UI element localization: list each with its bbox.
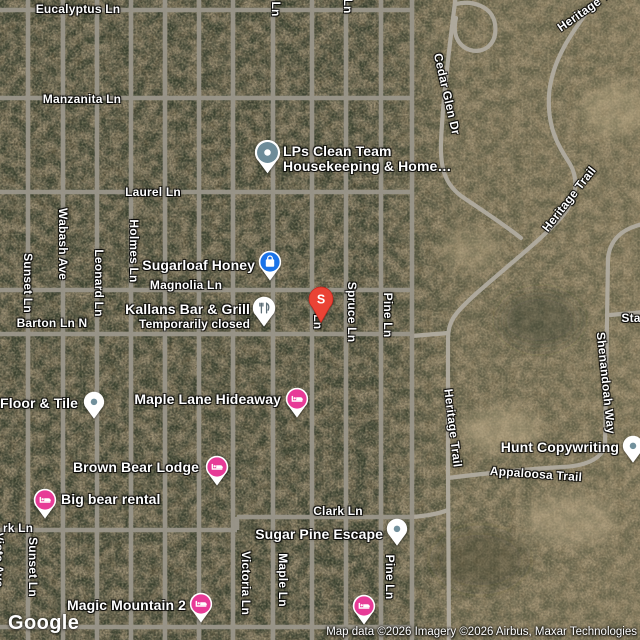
- poi-label-kallans-bar-grill[interactable]: Kallans Bar & Grill Temporarily closed: [125, 302, 250, 332]
- poi-label-brown-bear-lodge[interactable]: Brown Bear Lodge: [73, 460, 199, 475]
- street-label-barton-ln-n: Barton Ln N: [17, 316, 88, 330]
- poi-label-sugar-pine-escape[interactable]: Sugar Pine Escape: [255, 527, 383, 542]
- road-connector-barton: [412, 333, 448, 336]
- search-pin-letter: S: [317, 292, 325, 306]
- road-heritage-trail: [448, 0, 600, 640]
- poi-label-big-bear-rental[interactable]: Big bear rental: [61, 492, 161, 507]
- google-logo[interactable]: Google: [8, 612, 79, 635]
- street-label-victoria-ln: Victoria Ln: [239, 551, 253, 615]
- lps-clean-team-pin[interactable]: [254, 139, 281, 175]
- sugar-pine-escape-pin[interactable]: [386, 518, 408, 547]
- street-label-wabash-ave: Wabash Ave: [56, 208, 70, 280]
- street-label-maple-ln: Maple Ln: [276, 553, 290, 607]
- sugarloaf-honey-pin[interactable]: [258, 250, 282, 282]
- poi-label-floor-tile[interactable]: s Floor & Tile: [0, 396, 78, 411]
- big-bear-rental-pin[interactable]: [33, 488, 57, 520]
- road-culdesac-loop: [455, 3, 496, 51]
- kallans-bar-grill-pin[interactable]: [252, 296, 276, 328]
- street-label-sta-clipped: Sta: [621, 311, 640, 325]
- street-label-clark-ln: Clark Ln: [313, 504, 363, 518]
- floor-tile-pin[interactable]: [83, 391, 105, 420]
- street-label-top-clip-2: Ln: [341, 0, 355, 14]
- road-connector-clark: [412, 510, 448, 517]
- map-canvas[interactable]: Eucalyptus Ln Manzanita Ln Laurel Ln Mag…: [0, 0, 640, 640]
- generic-dot-icon: [91, 399, 98, 406]
- street-label-leonard-ln: Leonard Ln: [92, 249, 106, 316]
- generic-dot-icon: [394, 526, 401, 533]
- generic-dot-icon: [630, 443, 637, 450]
- poi-label-maple-lane-hideaway[interactable]: Maple Lane Hideaway: [134, 392, 281, 407]
- street-label-holmes-ln: Holmes Ln: [127, 219, 141, 282]
- street-label-spruce-ln: Spruce Ln: [345, 282, 359, 342]
- poi-label-sugarloaf-honey[interactable]: Sugarloaf Honey: [142, 258, 255, 273]
- street-label-rk-ln-clipped: rk Ln: [3, 521, 33, 535]
- magic-mountain-2-pin[interactable]: [189, 592, 213, 624]
- poi-label-magic-mountain-2[interactable]: Magic Mountain 2: [67, 598, 186, 613]
- street-label-pine-ln-lower: Pine Ln: [383, 555, 397, 600]
- maple-lane-hideaway-pin[interactable]: [285, 387, 309, 419]
- street-label-vista-ave-clipped: Vista Ave: [0, 533, 6, 588]
- generic-dot-icon: [264, 149, 271, 156]
- street-label-magnolia-ln: Magnolia Ln: [150, 278, 222, 292]
- street-label-eucalyptus-ln: Eucalyptus Ln: [36, 2, 121, 16]
- search-result-pin-s[interactable]: S: [308, 286, 334, 324]
- street-label-laurel-ln: Laurel Ln: [125, 185, 181, 199]
- street-label-sunset-ln-lower: Sunset Ln: [26, 537, 40, 597]
- street-label-top-clip-1: Ln: [269, 1, 283, 16]
- map-attribution: Map data ©2026 Imagery ©2026 Airbus, Max…: [326, 626, 637, 638]
- street-label-sunset-ln: Sunset Ln: [21, 253, 35, 313]
- poi-label-hunt-copywriting[interactable]: Hunt Copywriting: [501, 440, 619, 455]
- hunt-copywriting-pin[interactable]: [622, 435, 640, 464]
- street-label-pine-ln-upper: Pine Ln: [381, 293, 395, 338]
- poi-label-lps-clean-team[interactable]: LPs Clean Team Housekeeping & Home…: [283, 144, 451, 174]
- brown-bear-lodge-pin[interactable]: [205, 455, 229, 487]
- lodging-pin-unnamed[interactable]: [352, 594, 376, 626]
- street-label-manzanita-ln: Manzanita Ln: [43, 92, 121, 106]
- road-shenandoah-north: [608, 224, 640, 258]
